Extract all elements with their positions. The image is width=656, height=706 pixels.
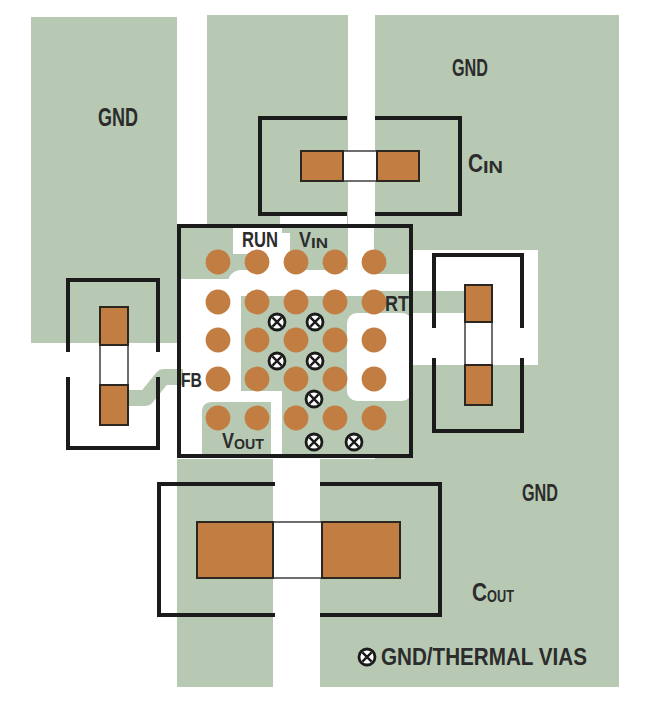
rt-resistor-body-gap	[465, 322, 492, 365]
ic-pad	[284, 367, 309, 392]
gnd-plane-left	[31, 17, 177, 343]
ic-pad	[206, 250, 231, 275]
cout-body-gap	[273, 522, 322, 578]
rt-resistor-pad-top	[465, 285, 492, 322]
ic-pad	[284, 406, 309, 431]
ic-pad	[284, 290, 309, 315]
pcb-layout-diagram: GND GND GND RUN VIN RT FB VOUT CIN COUT …	[0, 0, 656, 706]
clearance-above-vout-patch	[202, 391, 271, 402]
cout-pad-right	[322, 522, 400, 578]
fb-resistor-body-gap	[100, 345, 128, 385]
gnd-label-bottom-right: GND	[522, 479, 558, 506]
ic-pad	[284, 328, 309, 353]
thermal-via-icon	[307, 314, 323, 330]
ic-pad	[362, 328, 387, 353]
ic-pad	[206, 406, 231, 431]
legend: GND/THERMAL VIAS	[359, 644, 587, 670]
ic-pad	[323, 328, 348, 353]
fb-resistor-pad-bottom	[100, 385, 128, 425]
cout-pad-left	[197, 522, 273, 578]
ic-pad	[245, 290, 270, 315]
rt-pin-label: RT	[385, 291, 409, 316]
ic-pad	[206, 328, 231, 353]
pcb-layout-canvas: GND GND GND RUN VIN RT FB VOUT CIN COUT …	[0, 0, 656, 706]
ic-pad	[323, 406, 348, 431]
ic-pad	[245, 406, 270, 431]
clearance-vout-channel	[271, 391, 282, 457]
ic-pad	[362, 406, 387, 431]
rt-resistor-pad-bottom	[465, 365, 492, 405]
vin-plane-top-middle	[207, 15, 348, 226]
cin-pad-left	[301, 151, 343, 181]
ic-pad	[323, 290, 348, 315]
thermal-via-icon	[346, 434, 362, 450]
cin-pad-right	[377, 151, 419, 181]
thermal-via-icon	[306, 434, 322, 450]
gnd-thermal-via-icon	[359, 649, 375, 665]
clearance-above-rt-trace	[374, 274, 412, 291]
thermal-via-icon	[306, 391, 322, 407]
ic-pad	[362, 367, 387, 392]
ic-pad	[206, 367, 231, 392]
ic-pad	[206, 290, 231, 315]
ic-pad	[245, 328, 270, 353]
run-pin-label: RUN	[242, 227, 278, 252]
cin-body-gap	[343, 151, 377, 181]
ic-pad	[362, 290, 387, 315]
thermal-via-icon	[307, 353, 323, 369]
ic-pad	[284, 250, 309, 275]
ic-pad	[245, 367, 270, 392]
fb-pin-label: FB	[181, 368, 202, 391]
ic-pad	[323, 367, 348, 392]
ic-pad	[323, 250, 348, 275]
ic-pad	[245, 250, 270, 275]
thermal-via-icon	[269, 353, 285, 369]
fb-trace	[127, 377, 183, 398]
legend-text: GND/THERMAL VIAS	[381, 644, 587, 670]
ic-pad	[362, 250, 387, 275]
gnd-label-left: GND	[98, 103, 138, 131]
gnd-label-top-right: GND	[452, 54, 488, 81]
fb-resistor-pad-top	[100, 307, 128, 345]
thermal-via-icon	[269, 314, 285, 330]
